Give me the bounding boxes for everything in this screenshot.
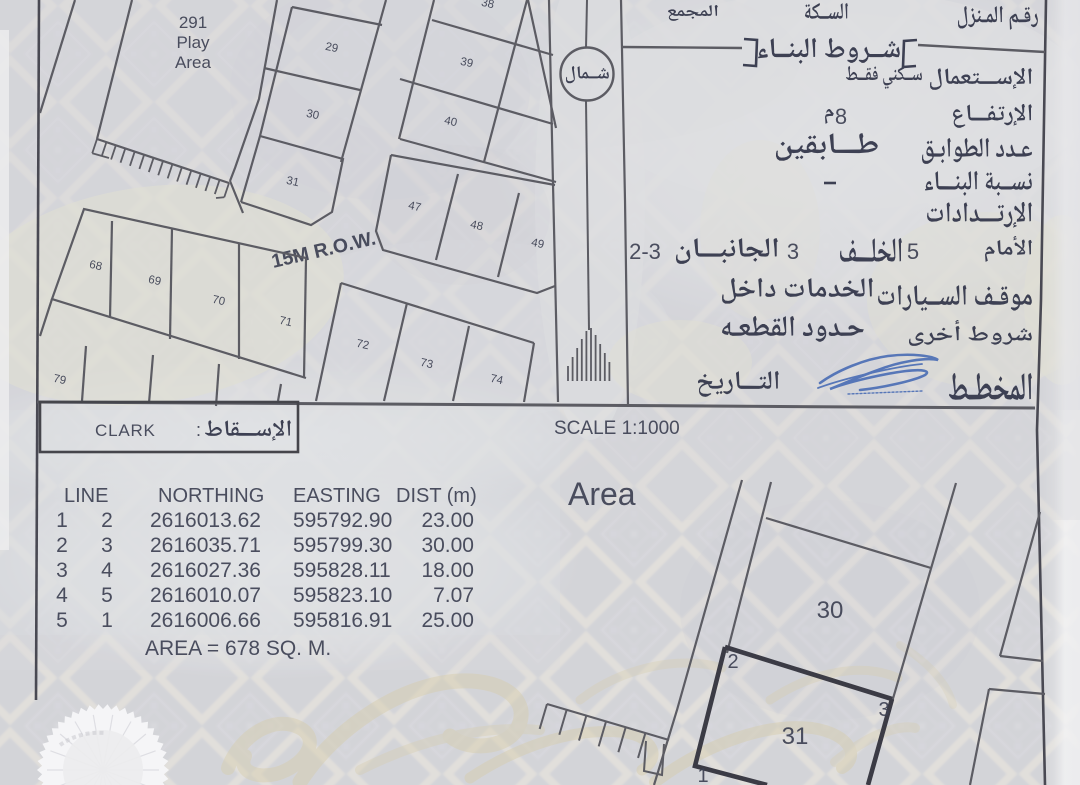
svg-text:SCALE 1:1000: SCALE 1:1000 <box>554 418 680 439</box>
svg-text:595816.91: 595816.91 <box>293 609 392 632</box>
svg-text::: : <box>196 420 201 440</box>
svg-text:2616010.07: 2616010.07 <box>150 584 261 607</box>
svg-text:2616035.71: 2616035.71 <box>150 534 261 557</box>
svg-text:1: 1 <box>101 609 113 632</box>
svg-text:595823.10: 595823.10 <box>293 584 392 607</box>
svg-text:2616027.36: 2616027.36 <box>150 559 261 582</box>
svg-text:3: 3 <box>787 239 799 264</box>
svg-text:4: 4 <box>56 584 68 607</box>
svg-text:3: 3 <box>56 559 68 582</box>
svg-text:595792.90: 595792.90 <box>293 509 392 532</box>
svg-text:CLARK: CLARK <box>95 421 156 440</box>
svg-text:3: 3 <box>878 699 889 721</box>
svg-text:2: 2 <box>101 509 113 532</box>
svg-text:2-3: 2-3 <box>629 239 661 264</box>
svg-text:30: 30 <box>817 597 844 624</box>
svg-text:1: 1 <box>697 765 708 785</box>
svg-text:5: 5 <box>56 609 68 632</box>
svg-text:2616006.66: 2616006.66 <box>150 609 261 632</box>
svg-text:5: 5 <box>907 239 919 264</box>
svg-text:2: 2 <box>56 534 68 557</box>
svg-text:291: 291 <box>179 13 207 32</box>
svg-text:595828.11: 595828.11 <box>293 559 391 582</box>
svg-text:Area: Area <box>175 53 211 72</box>
svg-text:Play: Play <box>176 33 210 52</box>
svg-text:5: 5 <box>101 584 113 607</box>
svg-text:18.00: 18.00 <box>421 559 474 582</box>
svg-text:NORTHING: NORTHING <box>158 485 264 507</box>
svg-text:8: 8 <box>835 104 847 129</box>
svg-text:2: 2 <box>727 651 738 673</box>
svg-text:4: 4 <box>101 559 113 582</box>
svg-text:LINE: LINE <box>64 485 108 507</box>
svg-text:23.00: 23.00 <box>421 509 474 532</box>
svg-text:7.07: 7.07 <box>433 584 474 607</box>
svg-text:DIST (m): DIST (m) <box>396 485 477 507</box>
svg-text:Area: Area <box>568 476 636 512</box>
svg-text:EASTING: EASTING <box>293 485 381 507</box>
svg-text:25.00: 25.00 <box>421 609 474 632</box>
svg-text:AREA = 678 SQ. M.: AREA = 678 SQ. M. <box>145 637 331 660</box>
svg-text:2616013.62: 2616013.62 <box>150 509 261 532</box>
svg-text:595799.30: 595799.30 <box>293 534 392 557</box>
svg-text:30.00: 30.00 <box>421 534 474 557</box>
svg-text:1: 1 <box>56 509 68 532</box>
svg-text:3: 3 <box>101 534 113 557</box>
svg-text:31: 31 <box>782 723 809 750</box>
